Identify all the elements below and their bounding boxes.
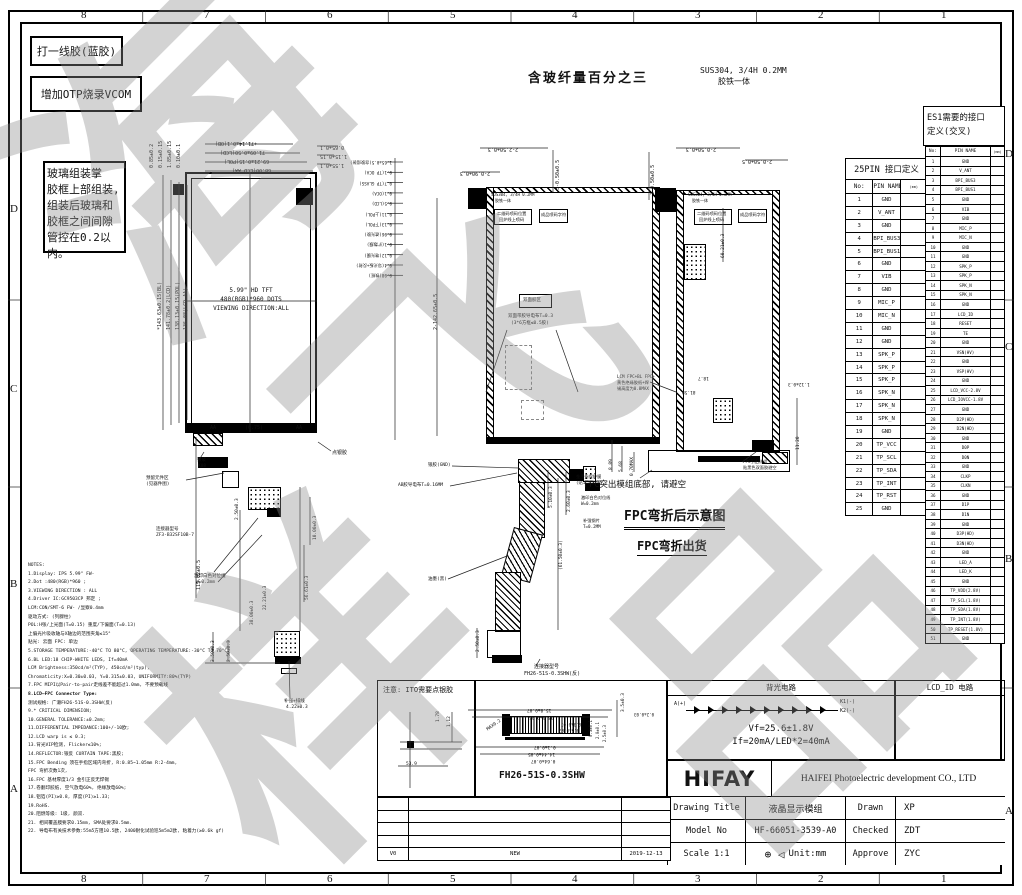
pin-row-cell: BPI_BUS1 — [873, 245, 900, 258]
pin-row-cell: 11 — [926, 252, 941, 262]
es1-title-line1: ES1需要的接口 — [927, 112, 985, 126]
grid-column-label: 8 — [81, 873, 87, 885]
note-line: 14.REFLECTOR:银反 CURTAIN TAPE:黑胶; — [28, 751, 243, 760]
dim-label: 8.89 — [609, 459, 614, 470]
dim-label: SUS304, 3/4H 0.2MM — [491, 193, 534, 198]
dim-label: 60.21±0.3 — [721, 234, 726, 258]
note-line: NOTES: — [28, 562, 243, 571]
pin-row-cell: LCD_ID — [941, 309, 991, 319]
pin-row-cell — [991, 433, 1005, 443]
pin-row-cell: 16 — [926, 300, 941, 310]
callout-box-otp-vcom: 增加OTP烧录VCOM — [30, 76, 142, 112]
pin-row-cell: 21 — [926, 347, 941, 357]
dim-label: 胶铁一体 — [495, 199, 511, 204]
drawing-title-value: 液晶显示模组 — [745, 796, 845, 819]
dim-label: 2.60±0.3 — [567, 490, 572, 512]
dim-label: 0.70MAX — [630, 457, 635, 476]
dim-label: 油墨(黑) — [428, 577, 447, 582]
grid-row-label: A — [1005, 805, 1013, 817]
grid-column-label: 4 — [572, 873, 578, 885]
pin-row-cell — [991, 414, 1005, 424]
pin-row-cell: MIC_P — [873, 297, 900, 310]
note-line: 11.DIFFERENTIAL IMPEDANCE:100+/-10欧; — [28, 725, 243, 734]
dim-label: T=0.2MM — [583, 525, 601, 530]
dim-label: 2-0.90±0.3 — [460, 169, 490, 175]
led-diode-icon — [778, 706, 784, 714]
checked-by-value: ZDT — [895, 819, 1005, 842]
grid-row-label: C — [1005, 341, 1012, 353]
pin-row-cell: 31 — [926, 443, 941, 453]
k2-label: K2(-) — [840, 709, 855, 715]
pin-row-cell — [900, 335, 927, 348]
dim-label: 0.3±0.1 — [589, 720, 594, 737]
pin-row-cell: 13 — [926, 271, 941, 281]
pin-row-cell: SPK_N — [873, 387, 900, 400]
pin-row-cell: 19 — [846, 426, 873, 439]
pin-row-cell: V_ANT — [873, 206, 900, 219]
dim-label: 回炉线上喷码 — [499, 218, 524, 223]
pin-row-cell — [991, 262, 1005, 272]
pin-row-cell — [900, 490, 927, 503]
led-diode-icon — [708, 706, 714, 714]
dim-label: 连接器型号 — [534, 665, 559, 671]
field-label-checked: Checked — [845, 819, 895, 842]
pin-row-cell: 42 — [926, 548, 941, 558]
pin-row-cell: 38 — [926, 510, 941, 520]
note-line: 2.Dot :480(RGB)*960 ; — [28, 579, 243, 588]
dim-label: 0.65±0.1 — [320, 143, 344, 149]
dim-label: 2.5±0.3 — [603, 725, 608, 742]
pin-row-cell: V_ANT — [941, 166, 991, 176]
approved-by-value: ZYC — [895, 842, 1005, 865]
dim-label: (见器件图) — [146, 482, 169, 487]
grid-column-label: 7 — [204, 873, 210, 885]
pin-row-cell — [991, 223, 1005, 233]
pin-row-cell: 8 — [846, 284, 873, 297]
note-line: 1.Display: IPS 5.99" FW- — [28, 571, 243, 580]
pin-row-cell: VIB — [873, 271, 900, 284]
pin-row-cell: GND — [873, 335, 900, 348]
pin-row-cell: 44 — [926, 567, 941, 577]
grid-row-label: C — [10, 383, 17, 395]
pin-row-cell: TP_VCC — [873, 438, 900, 451]
pin-row-cell: MIC_P — [941, 223, 991, 233]
pin-row-cell — [991, 166, 1005, 176]
pin-row-cell: 12 — [846, 335, 873, 348]
pin-row-cell: MIC_N — [873, 310, 900, 323]
dim-label: 136.08(LCD AA) — [184, 288, 190, 330]
dim-label: 22.21±0.3 — [263, 586, 268, 610]
note-line: 13.背光VIP检测, Flicker≤10%; — [28, 742, 243, 751]
pin-row-cell: TP_RST — [873, 490, 900, 503]
note-line: 12.LCD warp is ≤ 0.3; — [28, 734, 243, 743]
pin-row-cell — [991, 271, 1005, 281]
dim-label: 0.4(导光板+反射) — [356, 262, 392, 267]
pin-row-cell — [900, 297, 927, 310]
field-label-drawn: Drawn — [845, 796, 895, 819]
dim-label: (61.50±0.3) — [559, 540, 564, 570]
dim-label: 3.5±0.3 — [621, 693, 626, 712]
pin-row-cell: 40 — [926, 529, 941, 539]
pin-row-cell: 9 — [846, 297, 873, 310]
dim-label: 银胶(GND) — [428, 463, 451, 468]
pin-row-cell: GND — [941, 491, 991, 501]
dim-label: 0.1(OCA) — [372, 190, 392, 195]
pin-row-cell: 23 — [846, 477, 873, 490]
pin-row-cell: 12 — [926, 262, 941, 272]
dim-label: W=0.2mm — [581, 502, 599, 507]
note-line: 上偏光片吸收轴与X轴边的范围夹角≤15° — [28, 631, 243, 640]
pin-row-cell: 29 — [926, 424, 941, 434]
note-line: 17.卷翻印胶纸, 空气放电60%, 绝缘放电60%; — [28, 785, 243, 794]
pin-row-cell — [991, 424, 1005, 434]
pin-row-cell — [900, 194, 927, 207]
note-line: POL:H张/上光面(T=0.15) 重度/下偏面(T=0.13) — [28, 622, 243, 631]
led-diode-icon — [764, 706, 770, 714]
pin-row-cell: 19 — [926, 328, 941, 338]
pin-row-cell: 37 — [926, 500, 941, 510]
dim-label: 2-2.50±0.3 — [488, 145, 518, 151]
ito-silver-note: 注意: ITO需要点银胶 — [383, 686, 453, 694]
pin-row-cell: GND — [873, 219, 900, 232]
pin-row-cell — [900, 451, 927, 464]
grid-column-label: 5 — [450, 9, 456, 21]
pin-row-cell: 26 — [926, 395, 941, 405]
pin-row-cell: 32 — [926, 452, 941, 462]
pin-row-cell: 36 — [926, 491, 941, 501]
pin-row-cell — [991, 500, 1005, 510]
revision-table: V0NEW2019-12-13 — [377, 797, 671, 861]
grid-column-label: 3 — [695, 873, 701, 885]
grid-column-label: 1 — [941, 873, 947, 885]
dim-label: (贴1:离型膜) — [576, 481, 603, 486]
dim-label: (0.75) — [245, 426, 263, 432]
dim-label: 补强+排线 — [284, 699, 305, 704]
pin-row-cell — [991, 472, 1005, 482]
pin-row-cell: D0N — [941, 452, 991, 462]
callout-box-line-glue: 打一线胶(蓝胶) — [30, 36, 123, 66]
pin-row-cell: SPK_P — [873, 348, 900, 361]
dim-label: 2.0±0.1 — [596, 722, 601, 739]
pin-row-cell: TP_INT — [873, 477, 900, 490]
dim-label: 0.85±0.2 — [150, 144, 156, 168]
note-line: 8.LCD—FPC Connector Type: — [28, 691, 243, 700]
pin-row-cell — [900, 400, 927, 413]
pin-row-cell: CLKN — [941, 481, 991, 491]
dim-label: 1.55±0.1 — [320, 161, 344, 167]
revision-cell — [409, 798, 622, 811]
dim-label: 480(RGB)*960 DOTS — [220, 297, 281, 304]
pin-row-cell: GND — [941, 195, 991, 205]
dim-label: 1.78 — [436, 711, 441, 722]
dim-label: 14.44±0.05 — [528, 751, 555, 756]
pin-row-cell: 47 — [926, 596, 941, 606]
pin-row-cell: GND — [941, 519, 991, 529]
model-no-value: HF-66051-3539-A0 — [745, 819, 845, 842]
unit-value: Unit:mm — [788, 849, 826, 859]
pin-row-cell — [900, 219, 927, 232]
drawing-sheet: 打一线胶(蓝胶) 增加OTP烧录VCOM 玻璃组装掌 胶框上部组装, 组装后玻璃… — [0, 0, 1022, 895]
pin-row-cell — [900, 413, 927, 426]
pin-row-cell — [991, 491, 1005, 501]
pin-row-cell: 17 — [926, 309, 941, 319]
pin-row-cell: GND — [941, 242, 991, 252]
dim-label: 1.85±0.15 — [168, 141, 174, 168]
pin-row-cell — [991, 328, 1005, 338]
pin-row-cell: 14 — [846, 361, 873, 374]
pin-row-cell — [900, 206, 927, 219]
if-spec: If=20mA/LED*2=40mA — [732, 737, 830, 747]
dim-label: 0.15±0.15 — [159, 141, 165, 168]
revision-cell — [378, 798, 409, 811]
pin-row-cell: TP_RESET(1.8V) — [941, 624, 991, 634]
pin-row-cell: 11 — [846, 322, 873, 335]
pin-row-cell — [991, 405, 1005, 415]
pin-row-cell: 18 — [926, 319, 941, 329]
dim-label: 11.20 — [796, 436, 801, 450]
pin-row-cell: MIC_N — [941, 233, 991, 243]
pin-row-cell: GND — [941, 214, 991, 224]
dim-label: 5.99" HD TFT — [229, 288, 272, 295]
pin-row-cell — [991, 319, 1005, 329]
pin-row-cell — [991, 309, 1005, 319]
dim-label: 81.58 — [682, 389, 696, 394]
pin-row-cell: 23 — [926, 367, 941, 377]
pin-row-cell: D1P — [941, 500, 991, 510]
pin-row-cell — [900, 374, 927, 387]
es1-title-line2: 定义(交叉) — [927, 126, 971, 140]
pin-row-cell — [991, 481, 1005, 491]
pin-row-cell: SPK_N — [873, 400, 900, 413]
company-logo: HIFAY — [667, 760, 771, 796]
dim-label: 3-0.50±0.5 — [556, 160, 562, 190]
pin-row-cell: TP_SCL(1.8V) — [941, 596, 991, 606]
revision-cell — [409, 810, 622, 823]
pin-row-cell: D2N(HD) — [941, 424, 991, 434]
pin-row-cell: 10 — [926, 242, 941, 252]
dim-label: 5.68 — [619, 461, 624, 472]
callout-line: 玻璃组装掌 — [47, 166, 102, 182]
note-line: 5.STORAGE TEMPERATURE:-40°C TO 80°C, OPE… — [28, 648, 243, 657]
dim-label: 1.65±0.5(含胶组装) — [350, 159, 392, 164]
pin-row-cell: 15 — [926, 290, 941, 300]
dim-label: 成品喷码字符 — [740, 213, 765, 218]
pin-row-cell — [991, 510, 1005, 520]
pin-row-cell — [991, 395, 1005, 405]
dim-label: 0.08(铁框) — [368, 272, 392, 277]
note-line: 18.铝箔(PI)≥0.8, 厚度(PI)≥1.33; — [28, 794, 243, 803]
dim-label: 2.50±0.3 — [235, 498, 240, 520]
pin-row-cell: GND — [941, 252, 991, 262]
callout-text: 增加OTP烧录VCOM — [41, 86, 131, 102]
callout-text: 打一线胶(蓝胶) — [37, 43, 116, 59]
note-line: 20.阻燃等级: 1级, 颜双. — [28, 811, 243, 820]
dim-label: SUS304, 3/4H 0.2MM — [688, 193, 731, 198]
lcd-id-title: LCD_ID 电路 — [895, 680, 1005, 696]
grid-row-label: B — [10, 578, 17, 590]
pin-row-cell — [991, 300, 1005, 310]
dim-label: 18.7 — [698, 375, 709, 380]
led-diode-icon — [792, 706, 798, 714]
dim-label: 141.78±0.2(LCD) — [167, 285, 173, 330]
pin-row-cell: GND — [941, 405, 991, 415]
pin-row-cell — [991, 252, 1005, 262]
pin-row-cell: SPK_P — [941, 271, 991, 281]
pin-row-cell: 24 — [846, 490, 873, 503]
pin-row-cell — [991, 357, 1005, 367]
pin-row-cell — [900, 464, 927, 477]
dim-label: 0.12(增光膜) — [364, 252, 392, 257]
dim-label: 1.12±0.3 — [788, 381, 810, 386]
pin-row-cell: GND — [873, 258, 900, 271]
pin-row-cell — [991, 233, 1005, 243]
dim-label: 2-142.65±0.5 — [434, 294, 440, 330]
pin-row-cell — [900, 387, 927, 400]
pin-row-cell: 13 — [846, 348, 873, 361]
pin-row-cell: 51 — [926, 634, 941, 644]
dim-label: 1.12 — [447, 716, 452, 727]
pin-row-cell: 10 — [846, 310, 873, 323]
dim-label: 38.00±0.3 — [250, 601, 255, 625]
pin-row-cell — [900, 322, 927, 335]
pin-row-cell: SPK_N — [873, 413, 900, 426]
pin-row-cell: 6 — [926, 204, 941, 214]
pin-row-cell: D2P(HD) — [941, 414, 991, 424]
pin-row-cell — [991, 605, 1005, 615]
pin-row-cell: 25 — [926, 386, 941, 396]
pin-row-cell: TE — [941, 328, 991, 338]
pin-row-cell — [991, 596, 1005, 606]
pin-row-cell — [991, 185, 1005, 195]
dim-label: 双面带胶导电布T=0.3 — [508, 314, 553, 319]
revision-cell — [378, 835, 409, 848]
pin-row-cell — [991, 452, 1005, 462]
pin-row-cell: D0P — [941, 443, 991, 453]
note-line: 16.FPC 基材厚度1/3 金引正反无焊锡 — [28, 777, 243, 786]
dim-label: 5.10±0.3 — [549, 486, 554, 508]
pin-row-cell — [991, 634, 1005, 644]
note-line: 9.* CRITICAL DIMENSION; — [28, 708, 243, 717]
grid-column-label: 6 — [327, 9, 333, 21]
dim-label: 0.06(遮光胶) — [364, 231, 392, 236]
connector-part-label: FH26-51S-0.3SHW — [499, 771, 585, 782]
pin-row-cell: BPI_BUS3 — [873, 232, 900, 245]
pin-row-cell — [991, 577, 1005, 587]
dim-label: 0.1(扩散膜) — [367, 241, 392, 246]
dim-label: 成品喷码字符 — [541, 213, 566, 218]
revision-cell — [409, 823, 622, 836]
pin-row-cell: LED_K — [941, 567, 991, 577]
pin-row-cell: 41 — [926, 538, 941, 548]
pin-row-cell: 3 — [846, 219, 873, 232]
pin-row-cell: 24 — [926, 376, 941, 386]
note-line: 10.GENERAL TOLERANCE:±0.2mm; — [28, 717, 243, 726]
grid-row-label: A — [10, 783, 18, 795]
dim-label: 0.5±0.07 — [559, 727, 579, 732]
pin-row-cell: SPK_N — [941, 281, 991, 291]
note-line: 19.RoHS. — [28, 803, 243, 812]
dim-label: 10.00±0.3 — [313, 516, 318, 540]
grid-column-label: 8 — [81, 9, 87, 21]
pin-row-cell — [991, 519, 1005, 529]
led-diode-icon — [750, 706, 756, 714]
pin-row-cell: 1 — [926, 157, 941, 167]
pin-row-cell: 14 — [926, 281, 941, 291]
pin-row-cell — [900, 361, 927, 374]
pin-row-cell — [991, 204, 1005, 214]
pin-row-cell: GND — [941, 376, 991, 386]
revision-cell — [622, 835, 671, 848]
pin-row-cell — [991, 386, 1005, 396]
pin-row-cell — [991, 557, 1005, 567]
dim-label: 15.0±0.05 — [529, 714, 553, 719]
grid-column-label: 3 — [695, 9, 701, 21]
dim-label: 0.7(TP GLASS) — [359, 180, 392, 185]
note-line: 22. 导电布有关技术参数:55m5方阻10.5欧, 2400耐化试验巡5m5m… — [28, 828, 243, 837]
callout-line: 管控在0.2以内。 — [47, 230, 122, 262]
dim-label: 1.15±0.15 — [320, 152, 347, 158]
pin-row-cell: 17 — [846, 400, 873, 413]
pin-row-cell: 28 — [926, 414, 941, 424]
pin-row-cell: 34 — [926, 472, 941, 482]
revision-cell: V0 — [378, 848, 409, 861]
pin-row-cell: BPI_BUS1 — [941, 185, 991, 195]
pin-row-cell — [991, 586, 1005, 596]
pin-row-cell: SPK_P — [941, 262, 991, 272]
pin-row-cell: GND — [941, 548, 991, 558]
pin-row-cell: CLKP — [941, 472, 991, 482]
pin-row-cell: GND — [941, 300, 991, 310]
pin-row-cell: 9 — [926, 233, 941, 243]
dim-label: 0.3±0.07 — [561, 721, 581, 726]
led-diode-icon — [736, 706, 742, 714]
pin-row-cell — [991, 290, 1005, 300]
dim-label: AB胶导电布T=0.16MM — [398, 483, 443, 488]
pin-row-cell: GND — [873, 426, 900, 439]
pin-table-25pin: 25PIN 接口定义No:PIN NAME(mm)1GND2V_ANT3GND4… — [845, 158, 928, 516]
note-line: 测试规格: 广濑FH26-51S-0.3SHW(反) — [28, 700, 243, 709]
revision-cell: 2019-12-13 — [622, 848, 671, 861]
dim-label: ZF3-B32SF10B-7 — [156, 533, 194, 538]
pin-row-cell: 4 — [926, 185, 941, 195]
dim-label: 138.13±0.15(POL) — [176, 282, 182, 330]
dim-label: 0.10±0.1 — [177, 144, 183, 168]
led-diode-icon — [694, 706, 700, 714]
pin-row-cell — [900, 258, 927, 271]
pin-row-cell: GND — [941, 462, 991, 472]
pin-row-cell: 20 — [926, 338, 941, 348]
pin-row-cell: TP_INT(1.8V) — [941, 615, 991, 625]
dim-label: 2.50±0.3 — [476, 630, 481, 652]
dim-label: 银浆 — [197, 458, 206, 463]
dim-label: 锡高度为0.8MAX — [617, 387, 649, 392]
dim-label: 68.00(LCD AA) — [232, 166, 271, 172]
k1-label: K1(-) — [840, 700, 855, 706]
dim-label: 0.64±0.07 — [531, 758, 555, 763]
dim-label: 贴黑色双面胶避空 — [743, 466, 777, 471]
led-diode-icon — [820, 706, 826, 714]
dim-label: K08 — [198, 464, 206, 469]
pin-row-cell — [991, 176, 1005, 186]
backlight-title: 背光电路 — [667, 680, 895, 696]
pin-row-cell: LCD_VCC-2.8V — [941, 386, 991, 396]
note-line: LCM Brightness:350cd/m²(TYP), 450cd/m²(t… — [28, 665, 243, 674]
pin-row-cell — [900, 284, 927, 297]
pin-row-cell: 2 — [846, 206, 873, 219]
pin-row-cell: 1 — [846, 194, 873, 207]
pin-row-cell — [991, 367, 1005, 377]
pin-row-cell — [991, 195, 1005, 205]
